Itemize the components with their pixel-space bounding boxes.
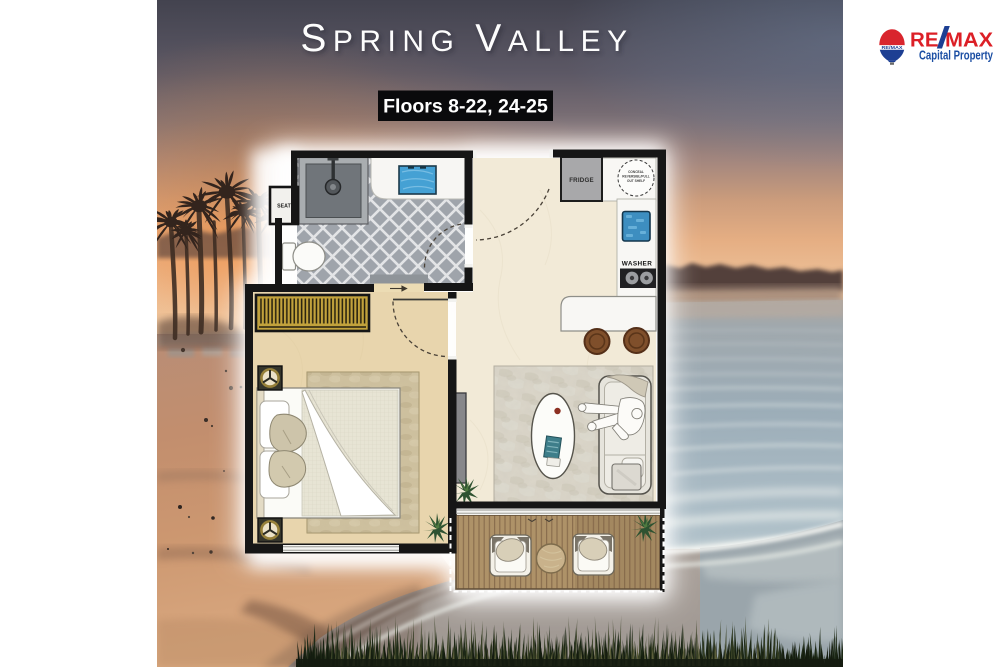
svg-text:CONCEAL: CONCEAL — [628, 170, 644, 174]
svg-text:WASHER: WASHER — [622, 261, 652, 268]
svg-text:REVERSIBL/PULL: REVERSIBL/PULL — [622, 175, 650, 179]
svg-text:SEAT: SEAT — [277, 204, 292, 210]
svg-text:OUT SHELF: OUT SHELF — [627, 179, 645, 183]
svg-text:Floors 8-22, 24-25: Floors 8-22, 24-25 — [383, 96, 548, 118]
svg-text:RE/MAX: RE/MAX — [882, 45, 903, 50]
svg-text:Capital Property: Capital Property — [919, 48, 994, 63]
svg-text:FRIDGE: FRIDGE — [569, 177, 594, 184]
